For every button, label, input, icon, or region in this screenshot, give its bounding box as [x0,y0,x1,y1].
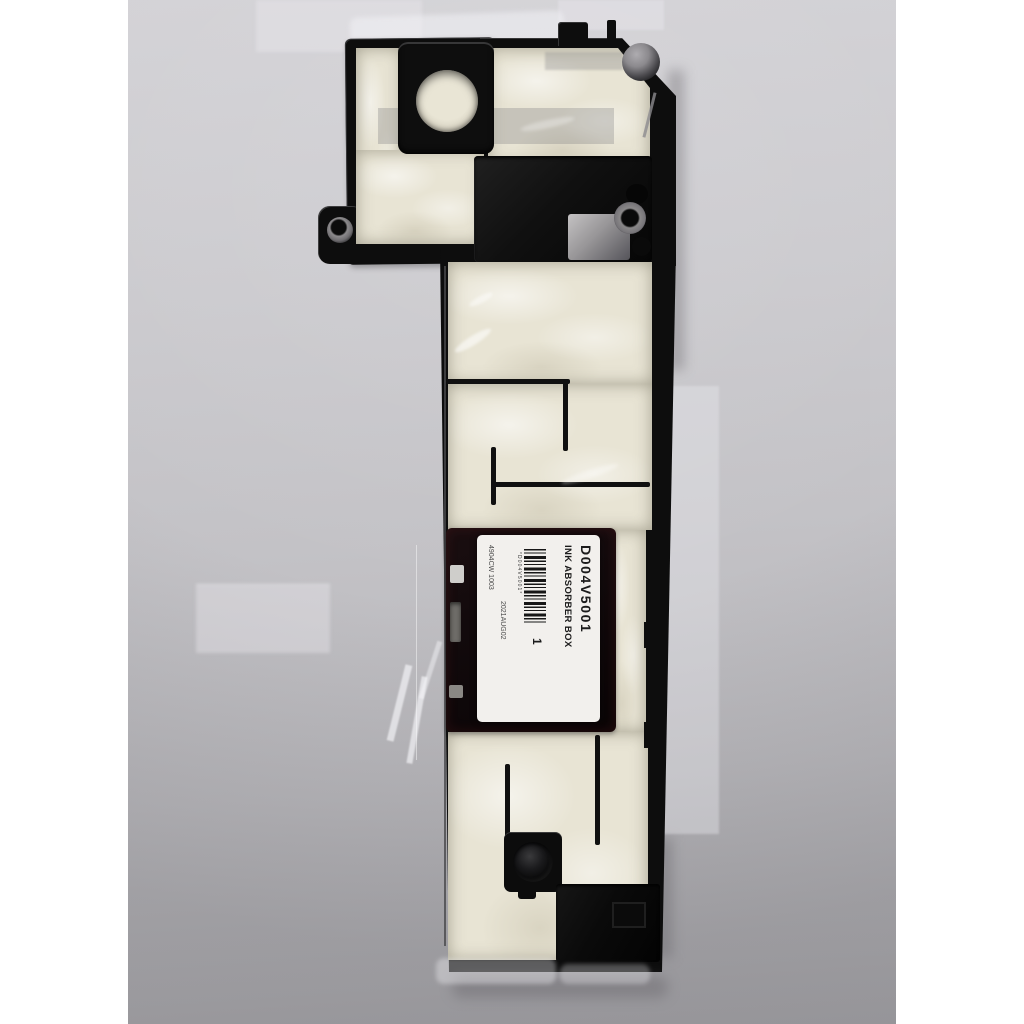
top-spike [607,20,616,40]
foam-boss-nub [518,890,536,899]
divider-rib-vertical-2 [491,447,496,505]
letterbox-right [896,0,1024,1024]
label-lot-code: 4904CW 1003 [487,545,494,590]
divider-rib-vertical-1 [563,379,568,451]
foam-pad-top-left-lower [356,150,484,244]
module-white-slot [450,565,464,583]
divider-rib-vertical-4 [595,735,600,845]
label-date-code: 2021AUG02 [499,601,506,640]
product-photo-stage: D004V5001 INK ABSORBER BOX *D004V5001* 1… [0,0,1024,1024]
top-tab [558,22,588,46]
tape-piece-left [196,584,330,653]
label-part-name: INK ABSORBER BOX [562,545,573,648]
wrap-gray-band-top-right [545,52,623,70]
recess-hole-lower [632,237,651,256]
lower-recess-detail [612,902,646,928]
mount-lug-hole [327,217,353,243]
letterbox-left [0,0,128,1024]
foam-pad-middle [448,384,652,530]
label-barcode [524,549,546,625]
divider-rib-horizontal-1 [446,379,570,384]
label-part-number: D004V5001 [578,545,594,633]
wrap-bottom-1 [436,958,556,984]
foam-pad-upper-middle [448,262,652,384]
recess-hole-upper [626,184,648,204]
frame-nub-right-1 [644,622,652,648]
screw-boss-ring [614,202,646,234]
wrap-bottom-2 [560,964,650,984]
round-port-hole [416,70,478,132]
corner-screw-hole [622,43,660,81]
module-small-square [449,685,463,698]
label-barcode-text: *D004V5001* [516,552,522,594]
frame-nub-right-2 [644,722,652,748]
product-label: D004V5001 INK ABSORBER BOX *D004V5001* 1… [477,535,600,722]
label-quantity: 1 [530,638,544,645]
module-vertical-slot [450,602,461,642]
foam-boss-hole [513,842,553,882]
divider-rib-vertical-3 [505,764,510,840]
